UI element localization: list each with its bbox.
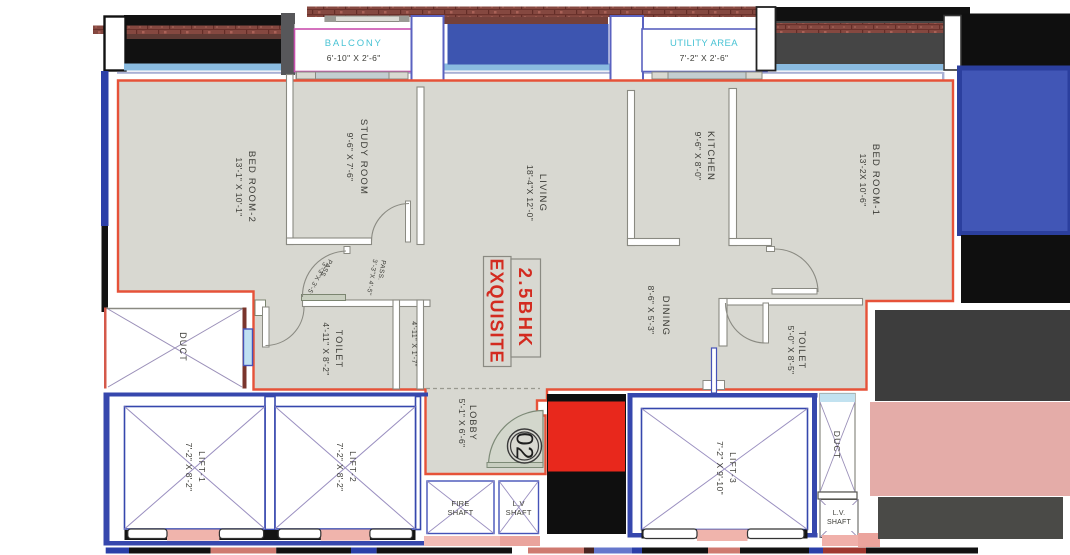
svg-text:TOILET: TOILET bbox=[797, 331, 807, 370]
svg-text:LIVING: LIVING bbox=[537, 174, 548, 212]
svg-text:FIRE: FIRE bbox=[451, 499, 469, 508]
svg-text:BED ROOM-1: BED ROOM-1 bbox=[870, 144, 881, 216]
svg-text:LIFT-1: LIFT-1 bbox=[197, 451, 207, 483]
svg-text:5'-1" X 6'-6": 5'-1" X 6'-6" bbox=[457, 399, 467, 448]
svg-text:KITCHEN: KITCHEN bbox=[705, 131, 716, 181]
svg-text:BED ROOM-2: BED ROOM-2 bbox=[246, 151, 257, 223]
svg-text:4'-11" X 8'-2": 4'-11" X 8'-2" bbox=[321, 322, 331, 375]
svg-text:EXQUISITE: EXQUISITE bbox=[487, 258, 507, 363]
svg-text:5'-0" X 8'-5": 5'-0" X 8'-5" bbox=[786, 326, 796, 375]
svg-text:DUCT: DUCT bbox=[178, 332, 188, 362]
svg-text:L.V.: L.V. bbox=[833, 510, 846, 517]
svg-text:9'-6" X 8'-0": 9'-6" X 8'-0" bbox=[693, 132, 703, 181]
svg-text:BALCONY: BALCONY bbox=[325, 38, 383, 49]
svg-text:6'-10" X 2'-6": 6'-10" X 2'-6" bbox=[327, 53, 381, 63]
svg-text:7'-2" X 8'-2": 7'-2" X 8'-2" bbox=[184, 443, 194, 492]
svg-text:LIFT-2: LIFT-2 bbox=[348, 451, 358, 483]
svg-text:2.5BHK: 2.5BHK bbox=[515, 268, 536, 349]
svg-text:7'-2" X 9'-10": 7'-2" X 9'-10" bbox=[715, 441, 725, 495]
svg-text:7'-2" X 8'-2": 7'-2" X 8'-2" bbox=[335, 443, 345, 492]
svg-text:13'-1" X 10'-1": 13'-1" X 10'-1" bbox=[234, 158, 244, 217]
svg-text:SHAFT: SHAFT bbox=[827, 519, 851, 526]
svg-text:UTILITY AREA: UTILITY AREA bbox=[670, 38, 738, 49]
svg-text:TOILET: TOILET bbox=[334, 330, 344, 369]
svg-text:DINING: DINING bbox=[660, 296, 671, 336]
svg-text:18'-4"X 12'-0": 18'-4"X 12'-0" bbox=[525, 165, 535, 221]
svg-text:02: 02 bbox=[511, 432, 538, 460]
svg-text:8'-6" X 5'-3": 8'-6" X 5'-3" bbox=[646, 286, 656, 335]
svg-text:4'-11" X 1'-7": 4'-11" X 1'-7" bbox=[410, 321, 417, 367]
svg-text:13'-2X 10'-6": 13'-2X 10'-6" bbox=[858, 154, 868, 207]
svg-text:SHAFT: SHAFT bbox=[506, 508, 532, 517]
svg-text:STUDY ROOM: STUDY ROOM bbox=[358, 119, 369, 195]
svg-text:LIFT-3: LIFT-3 bbox=[728, 452, 738, 484]
svg-text:SHAFT: SHAFT bbox=[447, 508, 473, 517]
svg-text:DUCT: DUCT bbox=[832, 431, 842, 459]
svg-text:9'-6" X 7'-6": 9'-6" X 7'-6" bbox=[345, 133, 355, 182]
svg-text:7'-2" X 2'-6": 7'-2" X 2'-6" bbox=[680, 53, 729, 63]
svg-text:LOBBY: LOBBY bbox=[468, 405, 478, 441]
svg-text:L.V: L.V bbox=[513, 499, 525, 508]
